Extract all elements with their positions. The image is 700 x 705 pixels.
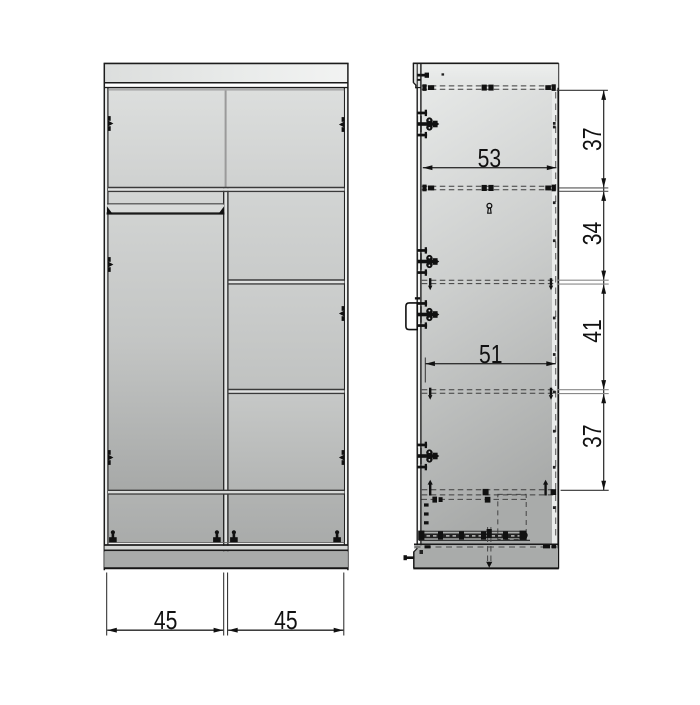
svg-text:51: 51	[479, 339, 503, 369]
svg-text:53: 53	[478, 143, 502, 173]
svg-text:34: 34	[577, 222, 607, 246]
svg-text:41: 41	[577, 319, 607, 343]
svg-text:37: 37	[577, 425, 607, 449]
svg-text:45: 45	[154, 605, 178, 635]
svg-text:37: 37	[577, 127, 607, 151]
svg-text:45: 45	[274, 605, 298, 635]
